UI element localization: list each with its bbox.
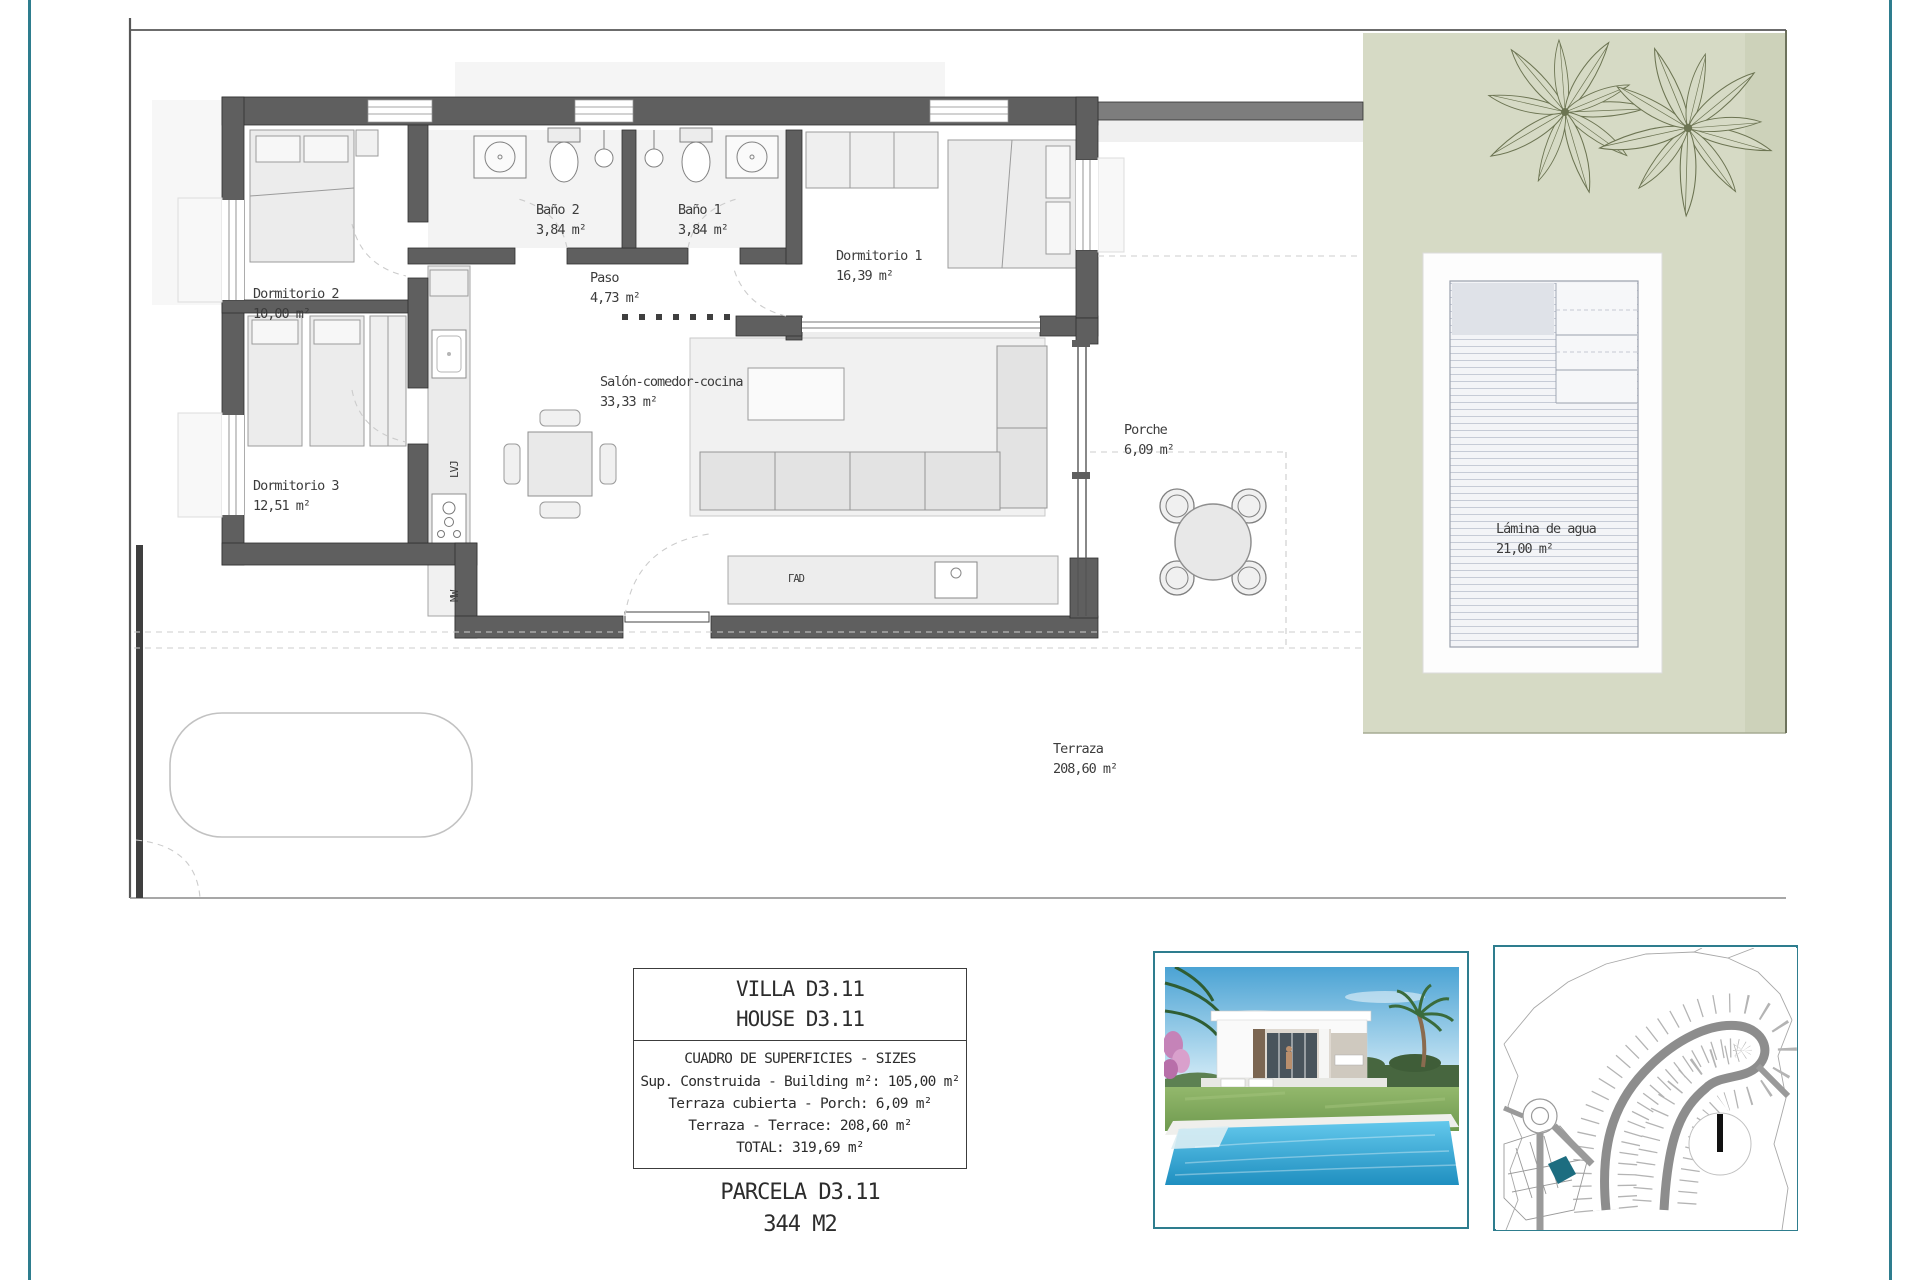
surface-row-building: Sup. Construida - Building m²: 105,00 m² (634, 1071, 966, 1093)
room-label-porche: Porche (1124, 422, 1168, 438)
room-label-paso: Paso (590, 270, 619, 286)
appliance-label-sideboard: ΓAD (788, 573, 805, 585)
room-area-bano-2: 3,84 m² (536, 222, 586, 238)
room-label-bano-1: Baño 1 (678, 202, 722, 218)
parcel-area: 344 M2 (633, 1210, 967, 1240)
info-panel: VILLA D3.11 HOUSE D3.11 CUADRO DE SUPERF… (633, 968, 967, 1240)
north-indicator-icon (1689, 1113, 1751, 1175)
room-area-salon: 33,33 m² (600, 394, 657, 410)
room-area-lamina: 21,00 m² (1496, 541, 1553, 557)
surface-table: CUADRO DE SUPERFICIES - SIZES Sup. Const… (634, 1040, 966, 1168)
house-title: HOUSE D3.11 (634, 1004, 966, 1034)
room-area-paso: 4,73 m² (590, 290, 640, 306)
column-dots (622, 314, 730, 320)
pool (1423, 253, 1662, 673)
appliance-label-microwave: MW (448, 589, 461, 602)
site-plan-image (1496, 948, 1797, 1230)
room-label-salon: Salón-comedor-cocina (600, 374, 743, 390)
parcel-title: PARCELA D3.11 (633, 1178, 967, 1208)
villa-photo (1153, 951, 1469, 1229)
surface-row-total: TOTAL: 319,69 m² (634, 1137, 966, 1159)
room-label-terraza: Terraza (1053, 741, 1103, 757)
roundabout (1523, 1099, 1557, 1133)
room-area-porche: 6,09 m² (1124, 442, 1174, 458)
surface-row-porch: Terraza cubierta - Porch: 6,09 m² (634, 1093, 966, 1115)
room-area-bano-1: 3,84 m² (678, 222, 728, 238)
room-area-dormitorio-3: 12,51 m² (253, 498, 310, 514)
car-outline (170, 713, 472, 837)
title-surface-box: VILLA D3.11 HOUSE D3.11 CUADRO DE SUPERF… (633, 968, 967, 1169)
room-label-lamina: Lámina de agua (1496, 521, 1596, 537)
appliance-label-dishwasher: LVJ (448, 461, 461, 478)
room-area-dormitorio-1: 16,39 m² (836, 268, 893, 284)
room-area-dormitorio-2: 10,00 m² (253, 306, 310, 322)
room-label-bano-2: Baño 2 (536, 202, 579, 218)
room-label-dormitorio-3: Dormitorio 3 (253, 478, 339, 494)
villa-title: VILLA D3.11 (634, 974, 966, 1004)
plan-sheet: Dormitorio 2 10,00 m² Dormitorio 3 12,51… (0, 0, 1920, 1280)
villa-photo-image (1164, 967, 1460, 1185)
site-plan (1493, 945, 1798, 1231)
room-label-dormitorio-2: Dormitorio 2 (253, 286, 339, 302)
room-label-dormitorio-1: Dormitorio 1 (836, 248, 922, 264)
surface-table-title: CUADRO DE SUPERFICIES - SIZES (634, 1047, 966, 1071)
room-area-terraza: 208,60 m² (1053, 761, 1117, 777)
surface-row-terrace: Terraza - Terrace: 208,60 m² (634, 1115, 966, 1137)
